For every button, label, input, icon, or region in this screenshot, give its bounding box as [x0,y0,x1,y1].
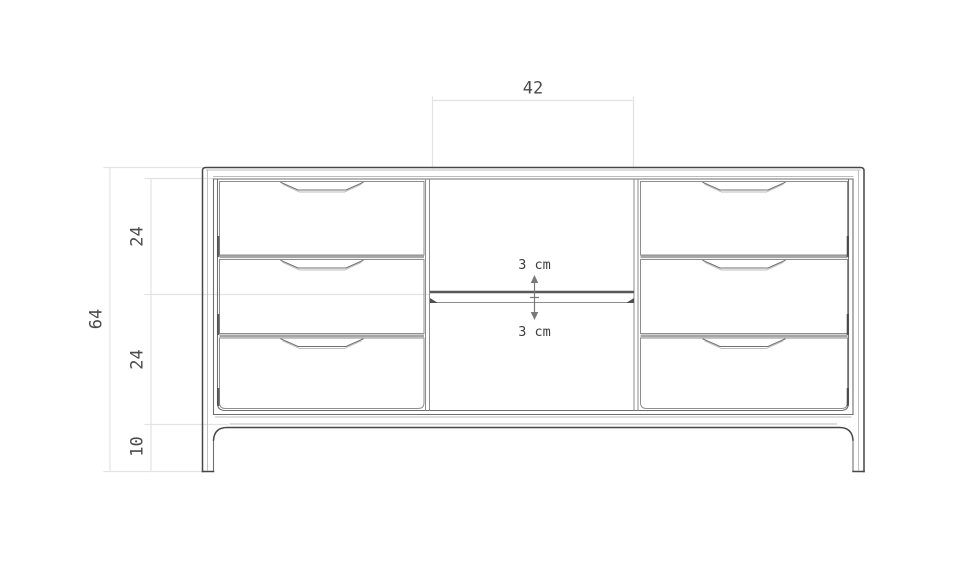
dim-label-total-height: 64 [87,309,107,329]
dim-label-leg-height: 10 [128,436,148,456]
arrow-down-icon [531,312,539,320]
dim-label-middle-width: 42 [523,79,543,99]
dim-label-upper-section: 24 [128,226,148,246]
diagram-canvas: 42 64 24 24 10 [0,0,960,587]
drawer [641,260,848,334]
furniture-dimension-diagram: 42 64 24 24 10 [0,0,960,587]
dimension-width-top: 42 [433,79,634,169]
bottom-rail-bottom [214,428,854,441]
shelf-adjust-label-below: 3 cm [518,324,551,340]
drawer [220,182,425,256]
bottom-rail-midlines [216,417,852,424]
frame-outer-edge [203,168,865,472]
dimension-line-total-height [104,168,214,472]
section-dividers [426,180,639,411]
drawer-gap-lines [641,257,848,336]
drawer [641,182,848,256]
arrow-up-icon [531,275,539,283]
right-drawer-stack [641,182,848,409]
dimension-line-width [433,97,634,168]
shelf-shadow-right [626,298,634,303]
frame-tube-midlines [207,170,861,470]
drawer [220,260,425,334]
cabinet-frame [203,168,865,472]
dim-label-lower-section: 24 [128,349,148,369]
dimension-height-total: 64 [87,168,215,472]
shelf-adjust-annotation: 3 cm 3 cm [518,257,551,340]
shelf-adjust-label-above: 3 cm [518,257,551,273]
shelf-shadow-left [430,298,438,303]
drawer-gap-lines [220,257,425,336]
shelf-adjust-arrow-line [530,279,539,317]
